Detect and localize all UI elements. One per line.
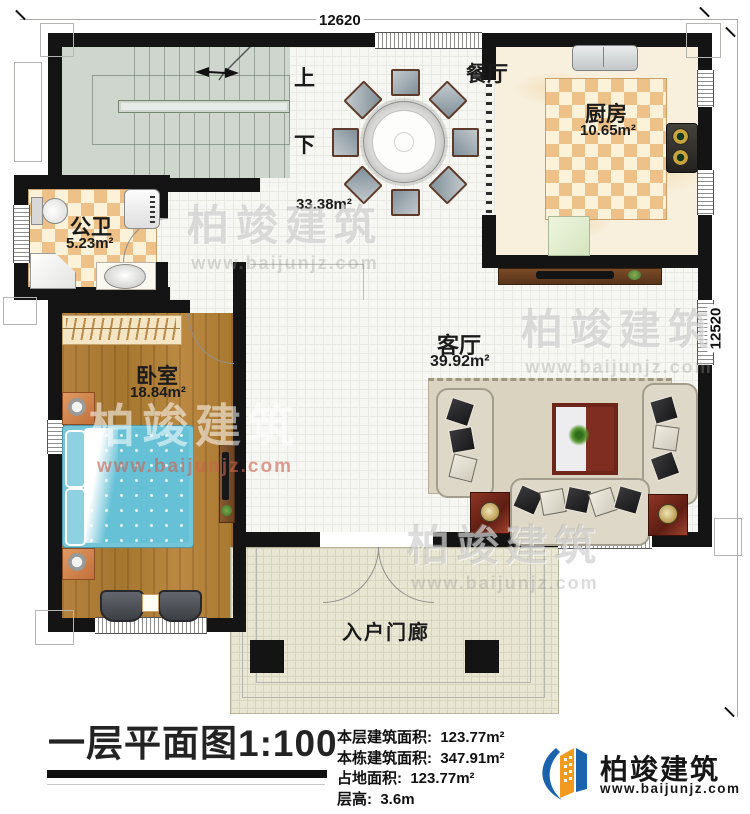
dim-tick-right-top [725,27,736,38]
bathroom-area-label: 5.23m² [66,235,114,252]
company-website: www.baijunjz.com [600,781,741,796]
stair-direction-arrow [193,42,257,88]
right-dimension-line [737,19,738,717]
sill-bracket-top-right [686,23,721,58]
coffee-table-plant [568,424,590,446]
floor-step-line-h [250,264,363,265]
wardrobe-hangers [66,318,176,340]
bedroom-tv [222,452,229,500]
title-underline-bold [47,770,327,778]
stove-burner-2 [672,149,689,166]
stair-handrail [118,100,290,113]
drawing-title-text: 一层平面图 [48,723,238,764]
living-area-label: 39.92m² [430,353,490,371]
nightstand-2-knob [68,553,86,571]
floor-step-line-v [363,264,364,300]
sofa-bottom-pillow-3 [564,486,592,514]
bedroom-side-table [142,594,159,612]
sill-bracket-left-lower [35,610,74,645]
stat-total-area: 本栋建筑面积: 347.91m² [337,749,505,770]
side-table-left-lamp [480,502,500,522]
bedroom-chair-2 [158,590,202,622]
bedroom-plant [221,505,232,516]
side-table-right-lamp [658,504,678,524]
wall-bath-right-lower [155,262,168,300]
bathroom-window [13,205,30,263]
dining-top-window [375,32,482,49]
bathroom-sink [104,264,146,289]
sill-bracket-left-mid [3,297,37,325]
kitchen-sink [572,45,638,71]
kitchen-sliding-door [486,82,492,213]
bed-sheet-fold [84,428,118,543]
right-dimension-value: 12520 [707,305,724,353]
dining-label: 餐厅 [466,58,508,88]
bedroom-chair-1 [100,590,144,622]
top-dimension-line [20,19,737,20]
company-logo-icon [540,740,596,802]
stats-block: 本层建筑面积: 123.77m² 本栋建筑面积: 347.91m² 占地面积: … [337,728,505,810]
stove-burner-1 [672,128,689,145]
sill-bracket-bottom-right [714,518,742,556]
stairs-down-label: 下 [294,129,315,159]
bedroom-area-label: 18.84m² [130,384,186,401]
wall-kitchen-bottom [482,255,712,268]
dining-chair [452,128,479,157]
porch-label: 入户门廊 [342,616,430,645]
porch-column-right [465,640,499,673]
dim-tick-top-right [699,7,710,18]
stat-floor-area: 本层建筑面积: 123.77m² [337,728,505,749]
kitchen-sink-divider [603,47,604,67]
wall-living-bottom-left [233,532,320,547]
wall-stairs-bottom [165,178,260,192]
tv [536,271,614,279]
pillow-2 [65,488,86,546]
stat-footprint-area: 占地面积: 123.77m² [337,769,505,790]
sill-bracket-top-left [40,23,74,57]
floor-plan: 上 下 [0,0,750,814]
dining-chair [391,189,420,216]
sofa-bottom-pillow-2 [539,488,567,516]
drawing-title: 一层平面图1:100 [48,713,338,767]
nightstand-1-knob [68,398,86,416]
kitchen-right-window-2 [697,170,714,215]
drawing-scale: 1:100 [238,723,338,764]
kitchen-area-label: 10.65m² [580,122,636,139]
sofa-left-pillow-2 [448,426,476,454]
tv-plant [628,270,641,280]
toilet-bowl [42,198,68,224]
dining-chair [332,128,359,157]
dining-area-label: 33.38m² [296,196,352,213]
porch-column-left [250,640,284,673]
fridge [548,216,590,256]
dining-lazy-susan [394,132,414,152]
kitchen-right-window-1 [697,70,714,107]
dining-chair [391,69,420,96]
wall-bedroom-top [48,300,190,313]
pillow-1 [65,430,86,488]
title-underline-thin [47,784,325,785]
wall-right [698,33,712,547]
sill-bracket-left-stairs [14,62,42,162]
top-dimension-value: 12620 [316,12,364,29]
sofa-right-pillow-2 [652,424,679,451]
stairs-up-label: 上 [294,62,315,92]
dim-tick-right-bottom [724,707,735,718]
wardrobe-rail [62,328,180,329]
wall-bath-top [14,175,170,189]
wall-bedroom-left [48,313,62,632]
washing-machine-panel [150,193,155,223]
stat-storey-height: 层高: 3.6m [337,790,505,811]
